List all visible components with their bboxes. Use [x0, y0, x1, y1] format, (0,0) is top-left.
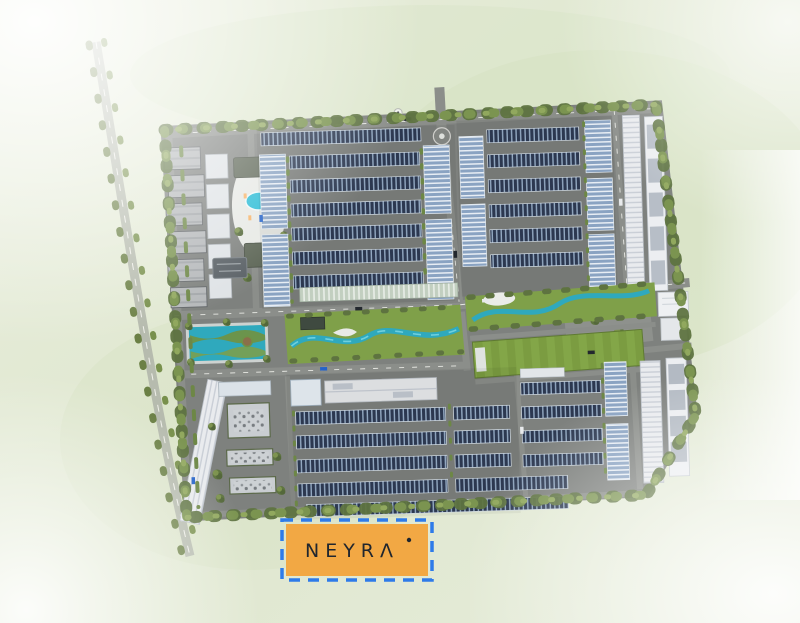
project-logo-text: NEYRΛ [305, 540, 399, 562]
masterplan-canvas: NEYRΛ [0, 0, 800, 623]
project-badge: NEYRΛ [282, 520, 432, 580]
masterplan-svg: NEYRΛ [0, 0, 800, 623]
logo-accent-dot [407, 538, 411, 542]
